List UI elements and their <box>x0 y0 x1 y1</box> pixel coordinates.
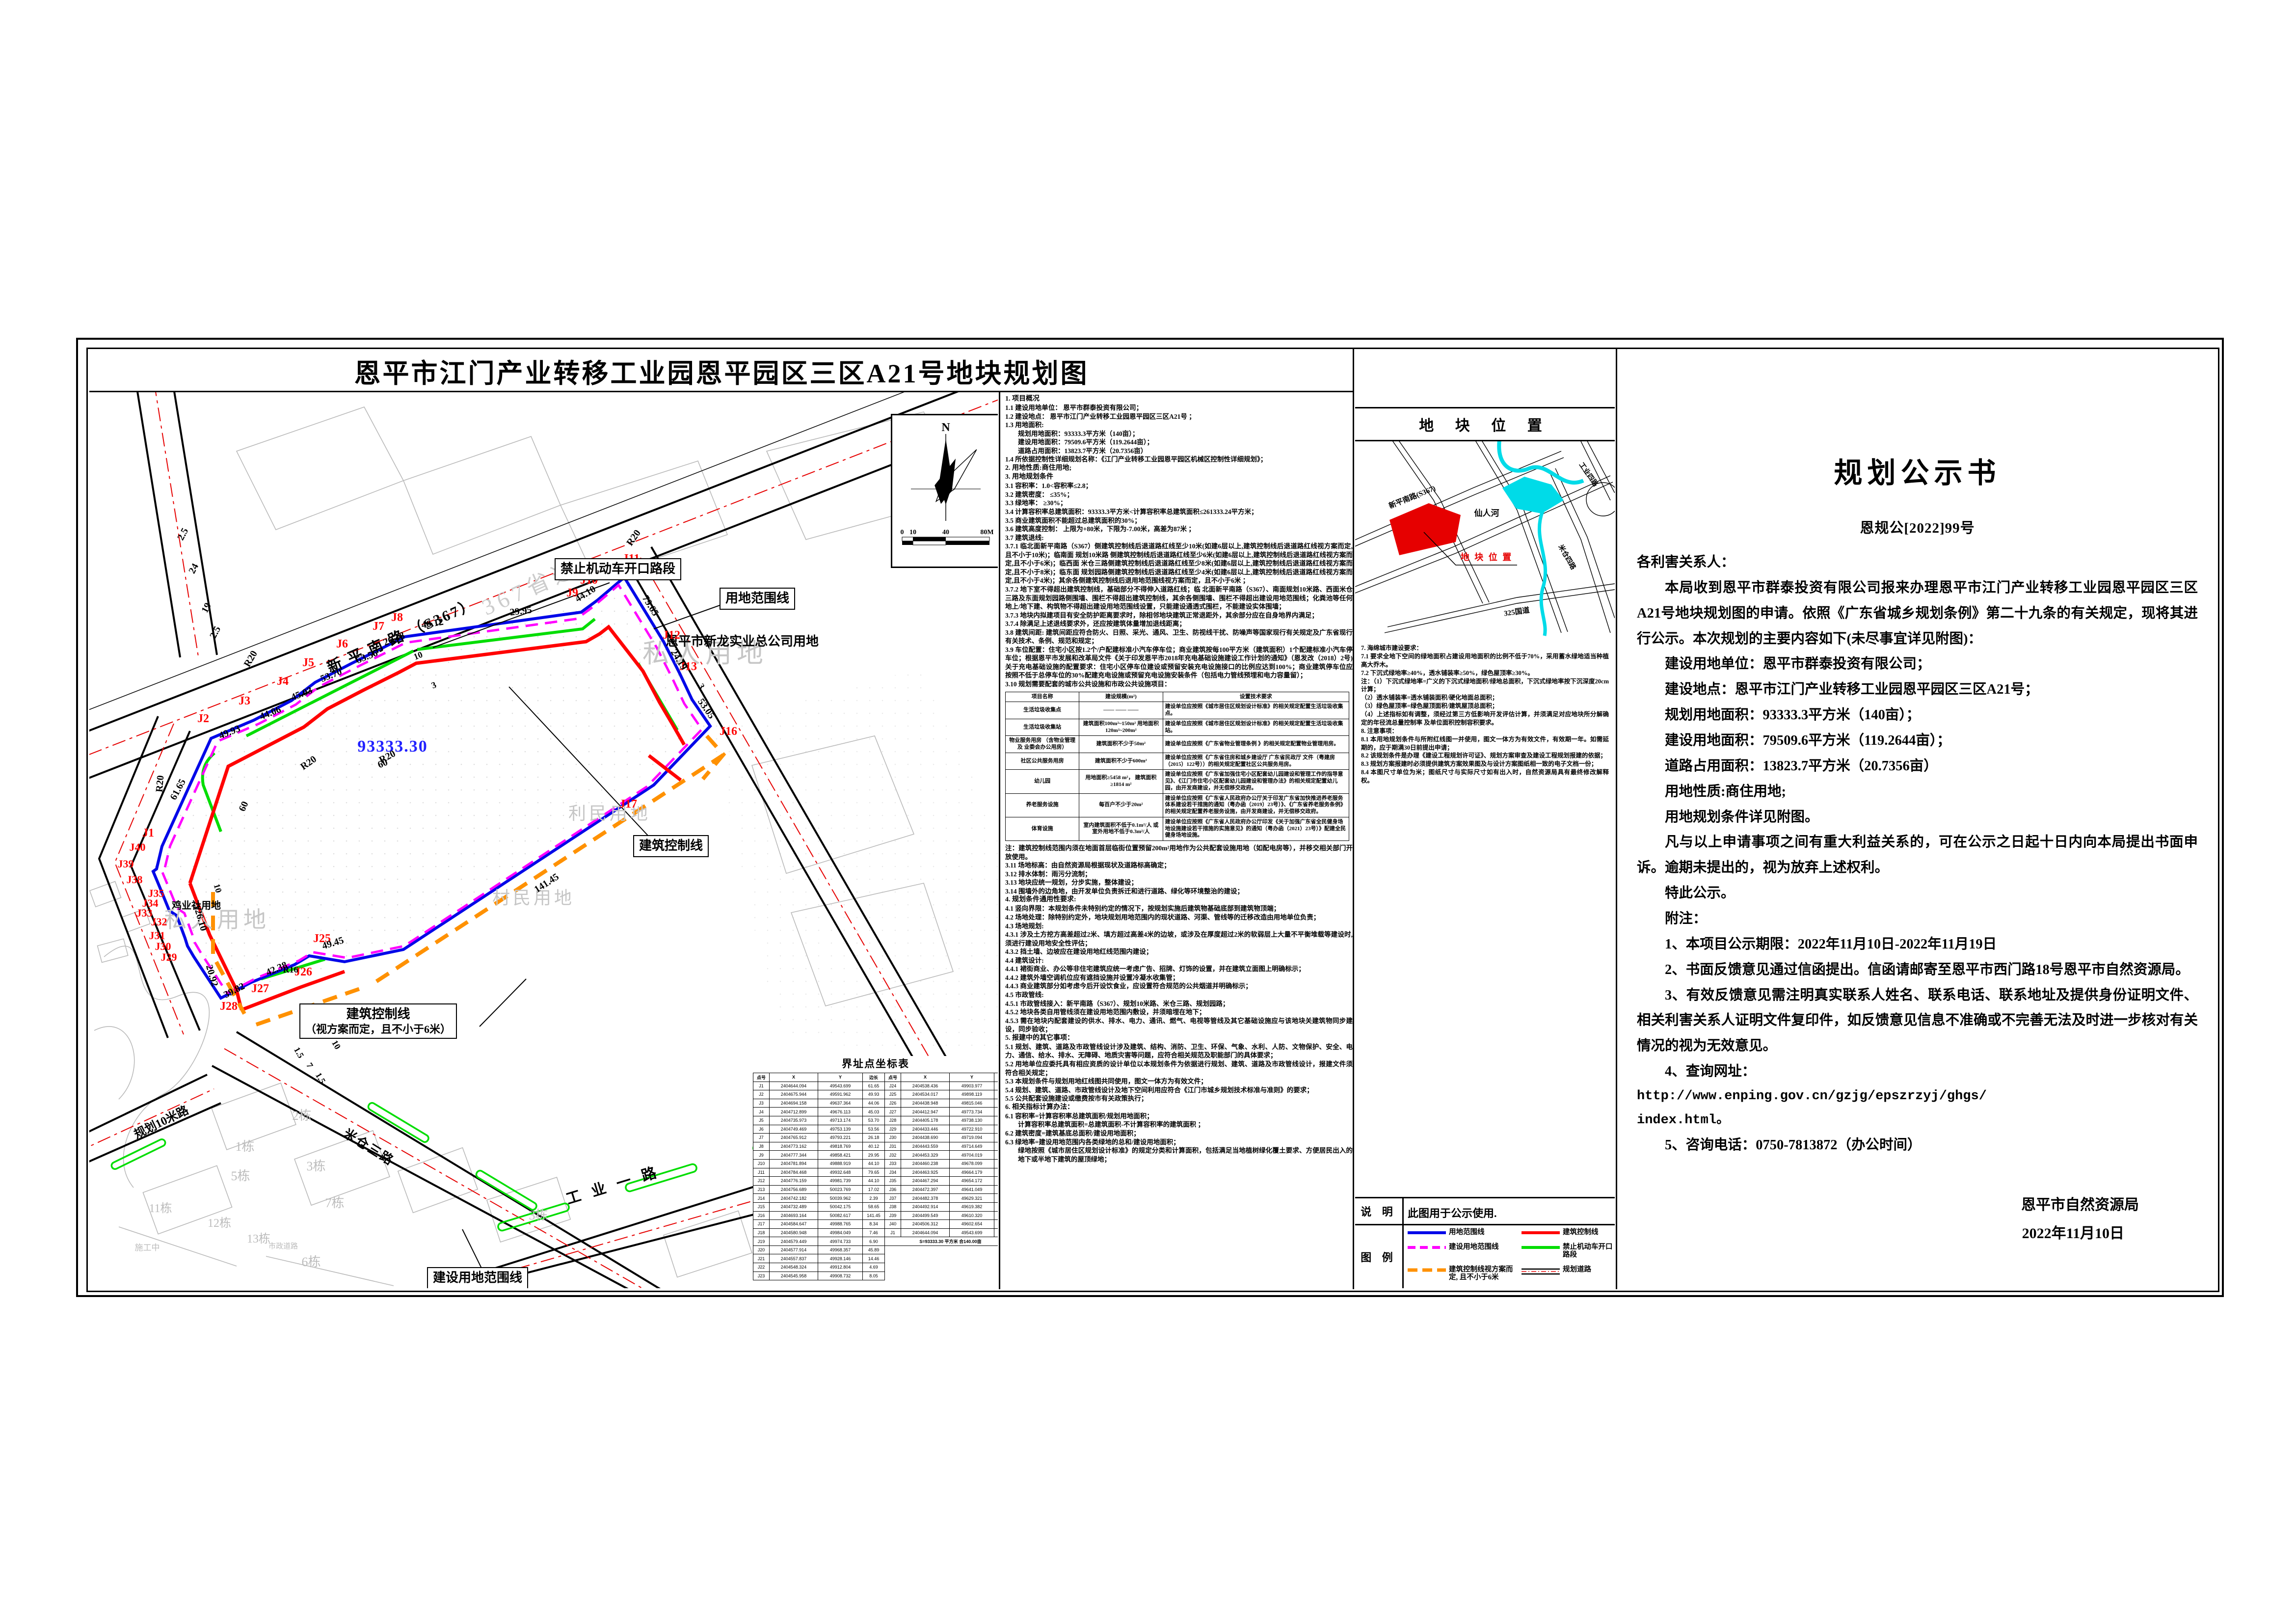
text-line: 4.5.3 需在地块内配套建设的供水、排水、电力、通讯、燃气、电视等管线及其它基… <box>1005 1017 1353 1034</box>
map-label: J31 <box>149 929 165 942</box>
facility-cell: 体育设施 <box>1006 817 1079 840</box>
text-line: 7.2 下沉式绿地率≥40%，透水铺装率≥50%，绿色屋顶率≥30%。 <box>1361 669 1609 677</box>
coord-cell: 2404506.312 <box>901 1220 950 1229</box>
text-line: 4.5.1 市政管线接入：新平南路（S367）、规划10米路、米仓三路、规划园路… <box>1005 1000 1353 1008</box>
facility-cell: 建设单位应按照《城市居住区规划设计标准》的相关规定配置生活垃圾收集点。 <box>1163 702 1349 719</box>
scale-tick: 80M <box>980 529 993 536</box>
text-line: 4.3.1 涉及土方挖方高差超过2米、填方超过高差4米的边坡，或涉及在厚度超过2… <box>1005 930 1353 947</box>
map-label: J40 <box>130 841 146 853</box>
coord-cell: 49619.382 <box>950 1202 994 1211</box>
coord-cell: 50082.617 <box>818 1211 863 1220</box>
facility-cell: 养老服务设施 <box>1006 793 1079 817</box>
text-line: 1.3 用地面积: <box>1005 421 1353 430</box>
map-label: J7 <box>373 620 384 633</box>
coord-cell: J15 <box>753 1202 770 1211</box>
coord-cell: J5 <box>753 1116 770 1125</box>
coord-cell <box>885 1254 998 1263</box>
coord-cell: 2404584.647 <box>770 1220 818 1229</box>
coord-cell: 49928.146 <box>818 1254 863 1263</box>
north-label: N <box>941 421 950 434</box>
coord-cell: 2404776.159 <box>770 1177 818 1186</box>
text-line: 3.2 建筑密度： ≤35%； <box>1005 490 1353 499</box>
coord-cell: 49654.172 <box>950 1177 994 1186</box>
text-line: 1.2 建设地点： 恩平市江门产业转移工业园恩平园区三区A21号 ； <box>1005 412 1353 421</box>
coord-cell: J17 <box>753 1220 770 1229</box>
coord-cell: 2404463.925 <box>901 1168 950 1177</box>
text-line: 5.4 规划、建筑、道路、市政管线设计及地下空间利用应符合《江门市城乡规划技术标… <box>1005 1086 1353 1095</box>
coord-cell: J10 <box>753 1159 770 1168</box>
coord-cell: 2404453.329 <box>901 1151 950 1160</box>
text-line: 6.1 容积率=计算容积率总建筑面积/规划用地面积； <box>1005 1112 1353 1121</box>
text-line: 3.6 建筑高度控制： 上限为+80米，下限为-7.00米，高差为87米 ； <box>1005 525 1353 534</box>
text-line: 各利害关系人： <box>1637 550 2198 575</box>
coord-cell: 2404577.914 <box>770 1245 818 1254</box>
facility-table: 项目名称建设规模(m²)设置技术要求生活垃圾收集点—— —— ——建设单位应按照… <box>1005 692 1349 841</box>
coord-cell: 2404644.094 <box>901 1228 950 1237</box>
text-line: 4. 规划条件通用性要求: <box>1005 895 1353 904</box>
map-label: J12 <box>663 629 680 642</box>
map-label: J38 <box>127 873 143 886</box>
scale-tick: 10 <box>909 529 916 536</box>
text-line: 4.4.2 建筑外墙空调机位应有遮挡设施并设置冷凝水收集管； <box>1005 974 1353 982</box>
coord-cell: 40.12 <box>863 1142 885 1151</box>
map-label: 12栋 <box>208 1217 231 1230</box>
coord-cell: 3.91 <box>994 1159 998 1168</box>
coord-cell: J20 <box>753 1245 770 1254</box>
coord-cell: 6.90 <box>863 1237 885 1246</box>
legend-label: 建设用地范围线 <box>1449 1243 1499 1251</box>
facility-cell: 生活垃圾收集点 <box>1006 702 1079 719</box>
map-label: J3 <box>239 695 250 707</box>
building-control2-line2: （视方案而定，且不小于6米） <box>305 1023 451 1036</box>
coord-cell: 8.05 <box>863 1272 885 1280</box>
road-symbol-swatch <box>1522 1268 1560 1275</box>
text-line: 注：建筑控制线范围内须在地面首层临街位置预留200m²用地作为公共配套设施用地（… <box>1005 844 1353 861</box>
coord-header: 边长 <box>994 1073 998 1082</box>
coord-cell: 44.10 <box>863 1177 885 1186</box>
text-line: 4.2 场地处理：除特别约定外，地块规划用地范围内的现状道路、河渠、管线等的迁移… <box>1005 913 1353 922</box>
text-line: 5.5 公共配套设施建设或缴费按市有关政策执行； <box>1005 1094 1353 1103</box>
coord-cell: 141.45 <box>863 1211 885 1220</box>
text-line: 特此公示。 <box>1637 881 2198 906</box>
text-line: 4.4.3 商业建筑部分如考虑今后开设饮食业，应设置符合规范的公共烟道并明确标示… <box>1005 982 1353 991</box>
notice-date: 2022年11月10日 <box>1637 1221 2198 1243</box>
facility-header: 设置技术要求 <box>1163 692 1349 702</box>
text-line: 注：（1）下沉式绿地率=广义的下沉式绿地面积/绿地总面积，下沉式绿地率按下沉深度… <box>1361 677 1609 694</box>
land-boundary-label: 用地范围线 <box>720 588 795 610</box>
text-line: 建设用地单位：恩平市群泰投资有限公司； <box>1637 651 2198 677</box>
map-label: J28 <box>220 1000 238 1013</box>
map-label: J39 <box>118 858 134 870</box>
text-line: 3. 用地规划条件 <box>1005 473 1353 482</box>
coord-cell: 49.45 <box>994 1090 998 1099</box>
coord-cell: 126.10 <box>994 1082 998 1090</box>
coord-cell: J34 <box>885 1168 901 1177</box>
no-vehicle-label: 禁止机动车开口路段 <box>555 558 681 580</box>
coord-cell: 49629.321 <box>950 1194 994 1203</box>
coord-cell: 2404693.164 <box>770 1211 818 1220</box>
coord-cell: J14 <box>753 1194 770 1203</box>
coord-cell: 2404784.468 <box>770 1168 818 1177</box>
legend-item-building-control: 建筑控制线 <box>1522 1228 1619 1240</box>
map-label: J17 <box>619 798 637 811</box>
coord-cell: J29 <box>885 1125 901 1134</box>
text-line: 道路占用面积：13823.7平方米（20.7356亩） <box>1637 754 2198 779</box>
coord-cell: J39 <box>885 1211 901 1220</box>
coord-cell: J32 <box>885 1151 901 1160</box>
text-line: 6.2 建筑密度=建筑基底总面积/建设用地面积； <box>1005 1129 1353 1138</box>
text-line: index.html。 <box>1637 1109 2198 1133</box>
map-label: 3栋 <box>529 1208 548 1222</box>
coord-cell: 2404467.294 <box>901 1177 950 1186</box>
text-line: 8.4 本图尺寸单位为米；图纸尺寸与实际尺寸如有出入时，自然资源局具有最终修改解… <box>1361 768 1609 785</box>
notice-body: 各利害关系人：本局收到恩平市群泰投资有限公司报来办理恩平市江门产业转移工业园恩平… <box>1637 550 2198 1158</box>
coord-cell: 49984.049 <box>818 1228 863 1237</box>
text-line: 7. 海绵城市建设要求： <box>1361 644 1609 652</box>
coord-cell: 2404443.559 <box>901 1142 950 1151</box>
coord-cell: 44.10 <box>863 1159 885 1168</box>
text-line: 计算容积率总建筑面积=总建筑面积-不计算容积率的建筑面积 ； <box>1005 1120 1353 1129</box>
map-label: J6 <box>336 638 348 650</box>
coord-cell: J4 <box>753 1108 770 1116</box>
coord-cell: 49932.648 <box>818 1168 863 1177</box>
legend-item-planned-road: 规划道路 <box>1522 1266 1619 1285</box>
coord-cell: 6.97 <box>994 1202 998 1211</box>
text-line: 8. 注意事项： <box>1361 727 1609 735</box>
map-label: 13栋 <box>247 1232 270 1245</box>
text-line: 6. 相关指标计算办法： <box>1005 1103 1353 1112</box>
coord-cell: 18.91 <box>994 1142 998 1151</box>
coord-cell: 49678.099 <box>950 1159 994 1168</box>
coord-cell: 49898.119 <box>950 1090 994 1099</box>
coord-cell: 49858.421 <box>818 1151 863 1160</box>
text-line: 用地规划条件详见附图。 <box>1637 805 2198 830</box>
map-label: 2栋 <box>292 1109 311 1123</box>
facility-cell: 建设单位应按照《城市居住区规划设计标准》的相关规定配置生活垃圾收集站。 <box>1163 719 1349 736</box>
coord-cell: 2404492.914 <box>901 1202 950 1211</box>
map-label: 1栋 <box>235 1139 254 1154</box>
map-label: J8 <box>391 611 403 624</box>
map-label: 施工中 <box>135 1243 160 1252</box>
coord-cell: 2404482.378 <box>901 1194 950 1203</box>
coord-cell: J31 <box>885 1142 901 1151</box>
coord-cell: J40 <box>885 1220 901 1229</box>
coord-cell: 2404773.162 <box>770 1142 818 1151</box>
coord-cell: J19 <box>753 1237 770 1246</box>
coord-cell: 49676.113 <box>818 1108 863 1116</box>
map-label: 村民用地 <box>492 888 575 908</box>
coord-cell: J26 <box>885 1099 901 1108</box>
location-label: 仙人河 <box>1474 508 1499 518</box>
legend-note-header: 说 明 <box>1355 1198 1404 1224</box>
coord-cell: 49543.699 <box>818 1082 863 1090</box>
page-title: 恩平市江门产业转移工业园恩平园区三区A21号地块规划图 <box>89 351 1354 391</box>
text-line: 3.7.1 临北面新平南路（S367）侧建筑控制线后退道路红线至少10米(如建6… <box>1005 542 1353 585</box>
coord-cell: J13 <box>753 1185 770 1194</box>
coordinate-table: 界址点坐标表 点号XY边长点号XY边长J12404644.09449543.69… <box>753 1056 998 1280</box>
text-line: 8.1 本用地规划条件与所附红线图一并使用，图文一体方为有效文件，有效期一年。如… <box>1361 735 1609 752</box>
text-line: 3.11 场地标高：由自然资源局根据现状及道路标高确定； <box>1005 861 1353 870</box>
notice-doc-number: 恩规公[2022]99号 <box>1637 516 2198 537</box>
coord-cell: 2404765.912 <box>770 1134 818 1142</box>
coord-cell: J23 <box>753 1272 770 1280</box>
text-line: 5.1 规划、建筑、道路及市政管线设计涉及建筑、结构、消防、卫生、环保、气象、水… <box>1005 1043 1353 1060</box>
facility-cell: 建设单位应按照《广东省物业管理条例 》的相关规定配置物业管理用房。 <box>1163 736 1349 753</box>
coord-cell: 49543.699 <box>950 1228 994 1237</box>
coord-cell: 49968.357 <box>818 1245 863 1254</box>
facility-cell: 每百户不少于20m² <box>1079 793 1163 817</box>
text-line: 5.2 用地单位应委托具有相应资质的设计单位以本规划条件为依据进行规划、建筑、道… <box>1005 1060 1353 1077</box>
map-label: J30 <box>155 940 171 952</box>
text-line: 5.3 本规划条件与规划用地红线图共同使用，图文一体方为有效文件； <box>1005 1077 1353 1086</box>
text-line: （4）上述指标如有调整，须经过第三方低影响开发评估计算，并须满足对应地块所分解确… <box>1361 710 1609 727</box>
text-line: 8.2 该规划条件是办理《建设工程规划许可证》、规划方案审查及建设工程规划报建的… <box>1361 752 1609 760</box>
coord-cell <box>885 1263 998 1272</box>
location-map: 新平南路(S367)仙人河工业四路米仓四路325国道地 块 位 置 <box>1355 441 1615 637</box>
legend-item-land-boundary: 用地范围线 <box>1408 1228 1522 1240</box>
coord-header: X <box>901 1073 950 1082</box>
text-line: 2、书面反馈意见通过信函提出。信函请邮寄至恩平市西门路18号恩平市自然资源局。 <box>1637 957 2198 983</box>
coord-cell: 49818.769 <box>818 1142 863 1151</box>
coord-cell: J3 <box>753 1099 770 1108</box>
legend-label: 建筑控制线 <box>1563 1228 1599 1237</box>
coord-cell: J6 <box>753 1125 770 1134</box>
text-line: 3.13 地块应统一规划，分步实施，整体建设； <box>1005 878 1353 887</box>
map-label: J5 <box>302 656 314 669</box>
coord-cell: J7 <box>753 1134 770 1142</box>
text-line: 规划用地面积：93333.3平方米（140亩）； <box>1637 703 2198 728</box>
map-label: J35 <box>148 887 164 899</box>
coord-cell: 5.69 <box>994 1168 998 1177</box>
text-line: 3.4 计算容积率总建筑面积：93333.3平方米<计算容积率总建筑面积≤261… <box>1005 508 1353 516</box>
coord-cell: 42.38 <box>994 1099 998 1108</box>
coord-cell: 49637.364 <box>818 1099 863 1108</box>
map-label: 5栋 <box>231 1169 250 1183</box>
plan-map: 新 平 南 路 （S367）367省道米仓三路规划10米路工 业 一 路私人用地… <box>89 392 998 1288</box>
facility-header: 项目名称 <box>1006 692 1079 702</box>
text-line: 5、咨询电话：0750-7813872（办公时间） <box>1637 1133 2198 1158</box>
scale-bar: 0104080M <box>901 529 994 545</box>
coord-header: 点号 <box>885 1073 901 1082</box>
coord-cell: J25 <box>885 1090 901 1099</box>
coord-cell: 49.93 <box>863 1090 885 1099</box>
coord-cell: 2404405.178 <box>901 1116 950 1125</box>
coord-cell: J1 <box>753 1082 770 1090</box>
facility-cell: 物业服务用房 （含物业管理及 业委会办公用房） <box>1006 736 1079 753</box>
coord-cell: 49974.733 <box>818 1237 863 1246</box>
coord-cell: 14.46 <box>863 1254 885 1263</box>
coord-cell: J28 <box>885 1116 901 1125</box>
text-line: 建设用地面积：79509.6平方米（119.2644亩）； <box>1005 438 1353 447</box>
map-label: J16 <box>720 725 737 738</box>
coord-cell: 7.46 <box>863 1228 885 1237</box>
compass-box: N 0104080M <box>891 414 998 568</box>
text-line: 3.14 围墙外的边角地，由开发单位负责拆迁和进行道路、绿化等环境整治的建设； <box>1005 887 1353 896</box>
map-label: 恩平市新龙实业总公司用地 <box>666 634 819 649</box>
coord-cell: 2404460.238 <box>901 1159 950 1168</box>
text-line: （3）绿色屋顶率=绿色屋顶面积/建筑屋顶总面积； <box>1361 702 1609 710</box>
facility-cell: 幼儿园 <box>1006 770 1079 793</box>
coord-cell: 58.65 <box>863 1202 885 1211</box>
coord-cell <box>994 1228 998 1237</box>
coord-cell: 50023.769 <box>818 1185 863 1194</box>
map-label: J2 <box>197 712 209 725</box>
legend-item-no-vehicle: 禁止机动车开口路段 <box>1522 1243 1619 1263</box>
map-label: J32 <box>151 916 167 928</box>
coord-cell: J18 <box>753 1228 770 1237</box>
green-line-swatch <box>1522 1245 1560 1249</box>
facility-cell: 建设单位应按照《广东省加强住宅小区配套幼儿园建设和管理工作的指导意见》、《江门市… <box>1163 770 1349 793</box>
coord-cell: 45.03 <box>863 1108 885 1116</box>
coord-cell: 2404548.324 <box>770 1263 818 1272</box>
coord-cell: 39.82 <box>994 1108 998 1116</box>
text-line: 规划用地面积：93333.3平方米（140亩）； <box>1005 430 1353 438</box>
facility-header: 建设规模(m²) <box>1079 692 1163 702</box>
text-line: 4.3 场地规划: <box>1005 922 1353 931</box>
coord-cell: 2404545.958 <box>770 1272 818 1280</box>
text-line: 4、查询网址： <box>1637 1059 2198 1084</box>
coord-cell: J9 <box>753 1151 770 1160</box>
coord-cell: 49714.649 <box>950 1142 994 1151</box>
coord-cell: 2404694.158 <box>770 1099 818 1108</box>
coord-cell: J30 <box>885 1134 901 1142</box>
text-line: 3.8 建筑间距: 建筑间距应符合防火、日照、采光、通风、卫生、防视线干扰、防噪… <box>1005 628 1353 646</box>
coord-cell: 20.92 <box>994 1116 998 1125</box>
text-line: 4.1 竖向界限：本规划条件未特别约定的情况下，按规划实施后建筑物基础底部到建筑… <box>1005 904 1353 913</box>
text-line: 建设地点：恩平市江门产业转移工业园恩平园区三区A21号； <box>1637 677 2198 703</box>
text-line: 4.5.2 地块各类自用管线须在建设用地范围内敷设，并须暗埋在地下； <box>1005 1008 1353 1017</box>
text-line: 2. 用地性质:商住用地; <box>1005 464 1353 473</box>
coord-cell: 44.06 <box>863 1099 885 1108</box>
building-control2-label: 建筑控制线 （视方案而定，且不小于6米） <box>299 1003 457 1039</box>
coord-cell: J2 <box>753 1090 770 1099</box>
construction-boundary-label: 建设用地范围线 <box>427 1267 528 1288</box>
coord-cell: 2404712.899 <box>770 1108 818 1116</box>
facility-cell: 建设单位应按照《广东省人民政府办公厅关于印发广东省加快推进养老服务体系建设若干措… <box>1163 793 1349 817</box>
legend-label: 用地范围线 <box>1449 1228 1485 1237</box>
text-line: 3.9 车位配置：住宅小区按1.2个/户配建标准小汽车停车位；商业建筑按每100… <box>1005 646 1353 680</box>
coord-cell: 53.70 <box>863 1116 885 1125</box>
map-label: R20 <box>154 775 166 792</box>
coord-cell: 50042.175 <box>818 1202 863 1211</box>
coord-cell: J38 <box>885 1202 901 1211</box>
text-line: 4.3.2 挡土墙、边坡应在建设用地红线范围内建设； <box>1005 947 1353 956</box>
coord-cell: J35 <box>885 1177 901 1186</box>
coord-cell: 49753.139 <box>818 1125 863 1134</box>
coord-cell: 29.95 <box>863 1151 885 1160</box>
coord-cell: 49738.130 <box>950 1116 994 1125</box>
text-line: 3.7.2 地下室不得超出建筑控制线，基础部分不得伸入道路红线；临 北面新平南路… <box>1005 585 1353 611</box>
text-line: 绿地按照《城市居住区规划设计标准》的规定分类和计算面积，包括满足当地植树绿化覆土… <box>1005 1146 1353 1164</box>
legend-box: 说 明 此图用于公示使用. 图 例 用地范围线 建筑控制线 建设用地范围线 <box>1355 1197 1615 1291</box>
public-notice-panel: 规划公示书 恩规公[2022]99号 各利害关系人：本局收到恩平市群泰投资有限公… <box>1617 349 2217 1289</box>
coord-cell: 2404472.397 <box>901 1185 950 1194</box>
map-label: J1 <box>142 827 154 839</box>
facility-cell: 建筑面积不少于50m² <box>1079 736 1163 753</box>
coord-cell: 49602.654 <box>950 1220 994 1229</box>
coord-footer: S=93333.30 平方米 合140.00亩 <box>885 1237 998 1246</box>
coord-cell: 49888.919 <box>818 1159 863 1168</box>
coord-cell: J8 <box>753 1142 770 1151</box>
legend-note-text: 此图用于公示使用. <box>1404 1198 1615 1227</box>
text-line: 3.5 商业建筑面积不能超过总建筑面积的30%； <box>1005 516 1353 525</box>
facility-cell: 建设单位应按照《广东省住房和城乡建设厅 广东省民政厅 文件（粤建房（2015）1… <box>1163 753 1349 770</box>
text-line: 4.5 市政管线: <box>1005 991 1353 1000</box>
location-panel: 地 块 位 置 新平南路(S367)仙人河工业四路米仓四路325国道地 块 位 … <box>1355 349 1615 1289</box>
coord-cell: 6.14 <box>994 1185 998 1194</box>
conditions-text-1: 1. 项目概况1.1 建设用地单位： 恩平市群泰投资有限公司；1.2 建设地点：… <box>1005 395 1353 689</box>
coord-cell: 50039.962 <box>818 1194 863 1203</box>
legend-label: 规划道路 <box>1563 1266 1591 1274</box>
coord-cell: 4.96 <box>994 1134 998 1142</box>
coord-cell: 61.65 <box>863 1082 885 1090</box>
text-line: 建设用地面积：79509.6平方米（119.2644亩）； <box>1637 728 2198 754</box>
coord-cell: 49591.962 <box>818 1090 863 1099</box>
text-line: 3.7.4 除满足上述退线要求外，还应按建筑体量增加退线距离； <box>1005 620 1353 628</box>
coord-cell: 49773.734 <box>950 1108 994 1116</box>
text-line: 3.7 建筑退线: <box>1005 534 1353 542</box>
coord-cell: 49610.320 <box>950 1211 994 1220</box>
coord-cell: 2404644.094 <box>770 1082 818 1090</box>
facility-cell: 建筑面积100m²~150m² 用地面积120m²~200m² <box>1079 719 1163 736</box>
coord-cell: J27 <box>885 1108 901 1116</box>
coord-cell: J16 <box>753 1211 770 1220</box>
coord-cell: 2404438.690 <box>901 1134 950 1142</box>
coord-cell: 10.45 <box>994 1220 998 1229</box>
text-line: 3.3 绿地率： ≥30%； <box>1005 499 1353 508</box>
facility-cell: 用地面积≥5458 m²， 建筑面积≥1814 m² <box>1079 770 1163 793</box>
coord-cell: J1 <box>885 1228 901 1237</box>
text-line: 1、本项目公示期限：2022年11月10日-2022年11月19日 <box>1637 932 2198 957</box>
legend-label: 建筑控制线视方案而定, 且不小于6米 <box>1449 1266 1522 1282</box>
text-line: 道路占用面积：13823.7平方米（20.7356亩） <box>1005 447 1353 456</box>
notice-signature: 恩平市自然资源局 <box>1637 1192 2198 1214</box>
sponge-city-text: 7. 海绵城市建设要求：7.1 要求全地下空间的绿地面积占建设用地面积的比例不低… <box>1355 639 1615 785</box>
north-arrow-icon <box>911 434 982 521</box>
building-control2-line1: 建筑控制线 <box>305 1006 451 1023</box>
text-line: http://www.enping.gov.cn/gzjg/epszrzyj/g… <box>1637 1084 2198 1109</box>
text-line: 凡与以上申请事项之间有重大利益关系的，可在公示之日起十日内向本局提出书面申诉。逾… <box>1637 830 2198 881</box>
notice-title: 规划公示书 <box>1637 450 2198 491</box>
coord-header: 边长 <box>863 1073 885 1082</box>
coord-cell: 49903.977 <box>950 1082 994 1090</box>
coord-cell: 8.34 <box>863 1220 885 1229</box>
text-line: 3.7.3 地块内拟建项目有安全防护距离要求时，除相邻地块建筑正常退距外，其余部… <box>1005 611 1353 620</box>
text-line: 5. 报建中的其它事项： <box>1005 1034 1353 1043</box>
coord-cell: 49815.046 <box>950 1099 994 1108</box>
coord-cell: 2404675.944 <box>770 1090 818 1099</box>
coord-cell: 49793.221 <box>818 1134 863 1142</box>
coord-cell: 2404580.948 <box>770 1228 818 1237</box>
coord-cell: 2404557.837 <box>770 1254 818 1263</box>
coord-cell: 32.14 <box>994 1177 998 1186</box>
coord-cell: 49988.765 <box>818 1220 863 1229</box>
legend-label: 禁止机动车开口路段 <box>1563 1243 1619 1259</box>
coord-cell: 2404742.182 <box>770 1194 818 1203</box>
coord-cell: 17.02 <box>863 1185 885 1194</box>
text-line: 4.4.1 裙街商业、办公等非住宅建筑应统一考虑广告、招牌、灯饰的设置，并在建筑… <box>1005 965 1353 974</box>
text-line: 附注： <box>1637 906 2198 932</box>
map-label: J27 <box>251 982 269 995</box>
coord-cell: 2.39 <box>863 1194 885 1203</box>
coord-cell: 49722.910 <box>950 1125 994 1134</box>
coord-cell: 49713.174 <box>818 1116 863 1125</box>
text-line: 用地性质:商住用地; <box>1637 779 2198 805</box>
coord-cell: 79.65 <box>863 1168 885 1177</box>
legend-header: 图 例 <box>1355 1225 1404 1288</box>
text-line: 本局收到恩平市群泰投资有限公司报来办理恩平市江门产业转移工业园恩平园区三区A21… <box>1637 575 2198 652</box>
coord-cell: 49641.049 <box>950 1185 994 1194</box>
